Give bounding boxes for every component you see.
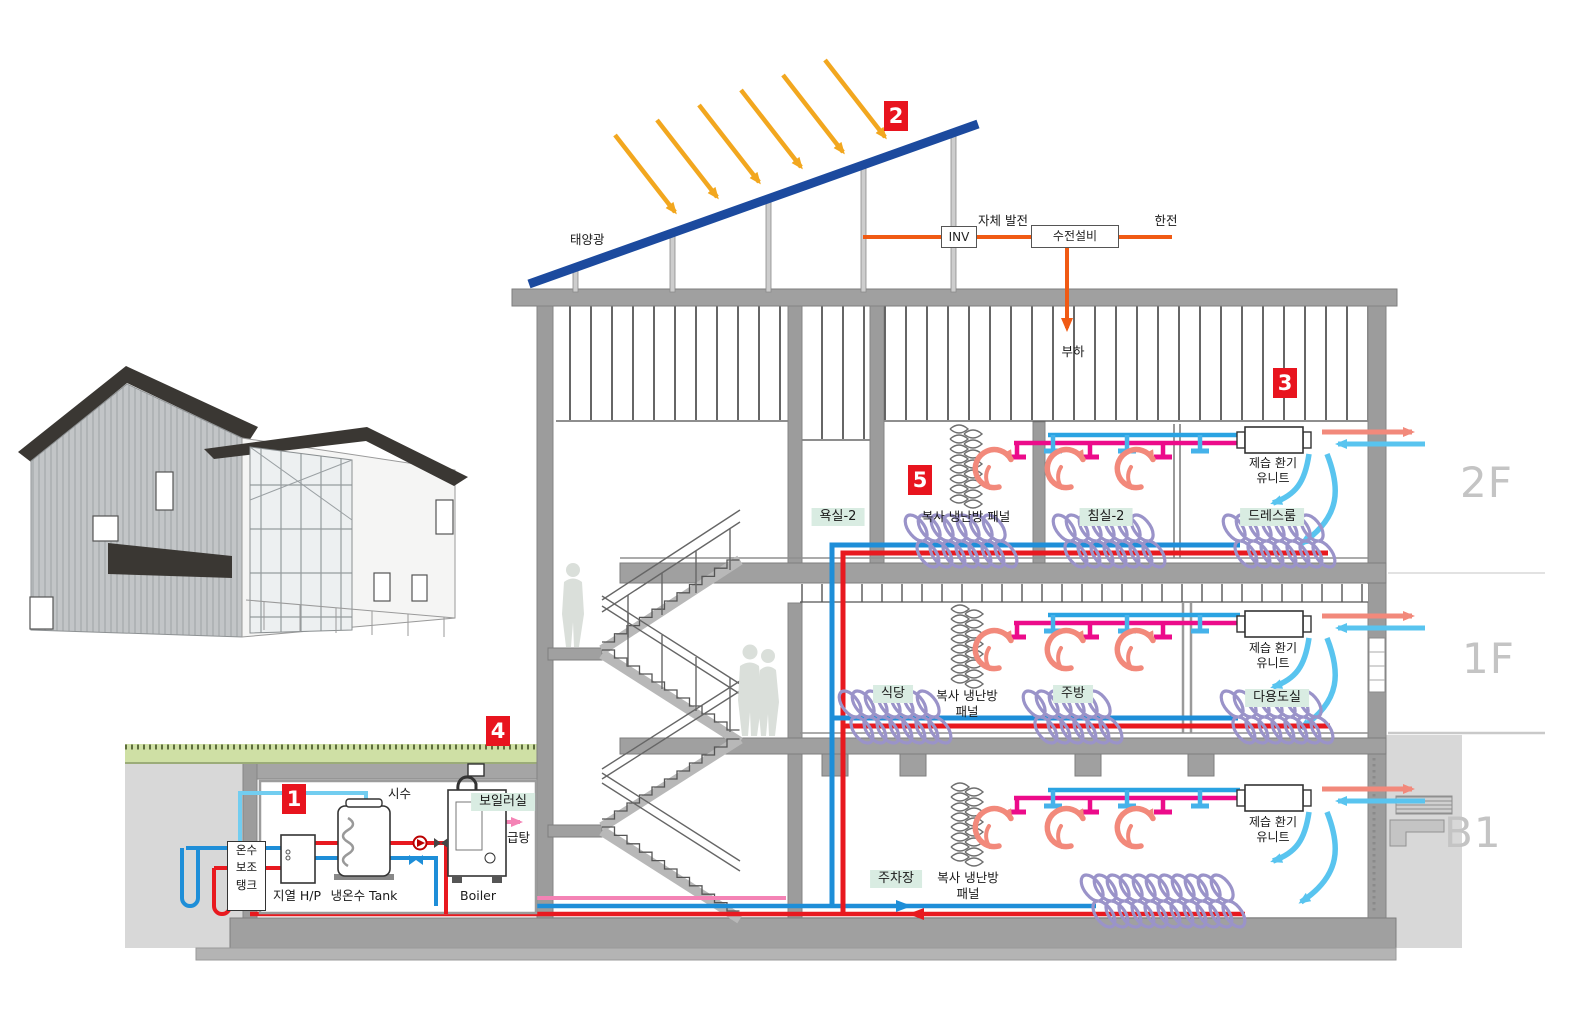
inverter-box: INV: [941, 226, 977, 248]
vent-unit-label-2f: 제습 환기 유니트: [1249, 456, 1297, 486]
marker-4: 4: [486, 716, 510, 746]
aux-tank-box: 온수 보조 탱크: [227, 841, 266, 911]
grid-label: 한전: [1154, 213, 1177, 229]
boiler-label: Boiler: [460, 888, 496, 904]
room-label-bed2: 침실-2: [1080, 508, 1133, 526]
radiant-panel-label-2f: 복사 냉난방 패널: [922, 509, 1010, 525]
radiant-panel-label-1f: 복사 냉난방 패널: [936, 688, 997, 719]
dhw-label: 급탕: [507, 830, 530, 846]
dehumid-vent-unit-b1: [1237, 785, 1311, 811]
room-label-utility: 다용도실: [1245, 689, 1309, 707]
marker-3: 3: [1273, 368, 1297, 398]
room-label-boiler-room: 보일러실: [471, 793, 535, 811]
solar-array: [529, 60, 978, 292]
dehumid-vent-unit-2f: [1237, 427, 1311, 453]
city-water-label: 시수: [388, 786, 411, 802]
room-label-kitchen: 주방: [1053, 685, 1093, 703]
load-label: 부하: [1061, 344, 1084, 360]
marker-2: 2: [884, 101, 908, 131]
vent-unit-label-1f: 제습 환기 유니트: [1249, 641, 1297, 671]
self-generation-label: 자체 발전: [978, 213, 1028, 229]
pv-panel: [529, 124, 978, 284]
geothermal-hp: [281, 835, 315, 883]
house-illustration: [18, 366, 468, 637]
room-label-bath2: 욕실-2: [812, 508, 865, 526]
pv-label: 태양광: [570, 232, 605, 248]
energy-section-diagram: 태양광 INV 자체 발전 수전설비 한전 부하 욕실-2 복사 냉난방 패널 …: [0, 0, 1580, 1030]
geo-hp-label: 지열 H/P: [273, 888, 321, 904]
radiant-panel-label-b1: 복사 냉난방 패널: [937, 870, 998, 901]
room-label-dining: 식당: [873, 685, 913, 703]
marker-5: 5: [908, 465, 932, 495]
floor-tag-2f: 2F: [1460, 458, 1513, 507]
vent-unit-label-b1: 제습 환기 유니트: [1249, 815, 1297, 845]
dehumid-vent-unit-1f: [1237, 611, 1311, 637]
floor-tag-1f: 1F: [1462, 634, 1515, 683]
room-label-parking: 주차장: [870, 870, 922, 888]
sun-arrows: [615, 60, 885, 212]
receiving-facility-box: 수전설비: [1031, 225, 1119, 248]
floor-tag-b1: B1: [1444, 808, 1502, 857]
tank-label: 냉온수 Tank: [331, 888, 398, 904]
room-label-dress: 드레스룸: [1240, 508, 1304, 526]
buffer-tank: [334, 799, 394, 880]
marker-1: 1: [282, 784, 306, 814]
